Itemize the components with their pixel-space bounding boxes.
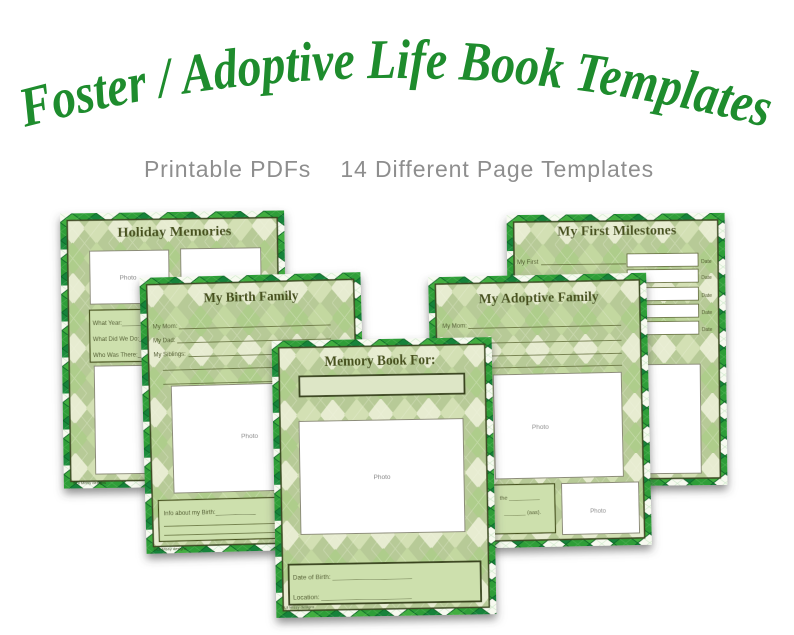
svg-text:Photo: Photo	[119, 275, 136, 282]
svg-text:Date: Date	[702, 310, 713, 316]
svg-text:Date: Date	[701, 293, 712, 299]
svg-text:My First: My First	[517, 260, 539, 266]
svg-text:My Siblings:: My Siblings:	[153, 352, 186, 359]
svg-text:Photo: Photo	[373, 474, 390, 481]
svg-text:Memory Book For:: Memory Book For:	[324, 352, 435, 370]
svg-text:the __________: the __________	[500, 495, 541, 502]
svg-text:What Did We Do:__: What Did We Do:__	[93, 336, 147, 343]
svg-text:My Mom:: My Mom:	[153, 324, 178, 331]
svg-text:My Birth Family: My Birth Family	[203, 289, 298, 306]
svg-text:Foster / Adoptive Life Book Te: Foster / Adoptive Life Book Templates	[12, 29, 779, 140]
svg-text:What Year:______: What Year:______	[93, 320, 143, 327]
svg-text:Date: Date	[701, 259, 712, 265]
svg-text:Date: Date	[702, 327, 713, 333]
svg-text:My First Milestones: My First Milestones	[557, 223, 677, 239]
svg-text:My Mom:: My Mom:	[442, 324, 467, 331]
svg-text:Photo: Photo	[590, 509, 606, 515]
svg-text:©Lil Missy designs: ©Lil Missy designs	[281, 604, 314, 610]
svg-text:My Dad:: My Dad:	[153, 338, 176, 345]
svg-text:Photo: Photo	[241, 433, 259, 440]
svg-text:Printable PDFs 14 Different: Printable PDFs 14 Different Page Templat…	[144, 156, 654, 182]
svg-text:©Lil Missy designs: ©Lil Missy designs	[153, 546, 186, 552]
svg-text:My Adoptive Family: My Adoptive Family	[478, 290, 598, 308]
svg-text:Who Was There:__: Who Was There:__	[93, 352, 145, 359]
svg-text:Date: Date	[701, 275, 712, 281]
svg-text:Holiday Memories: Holiday Memories	[117, 224, 232, 241]
svg-text:Photo: Photo	[532, 424, 550, 431]
svg-text:_______ (aas).: _______ (aas).	[503, 510, 542, 517]
svg-text:©Lil Missy designs: ©Lil Missy designs	[73, 480, 106, 485]
